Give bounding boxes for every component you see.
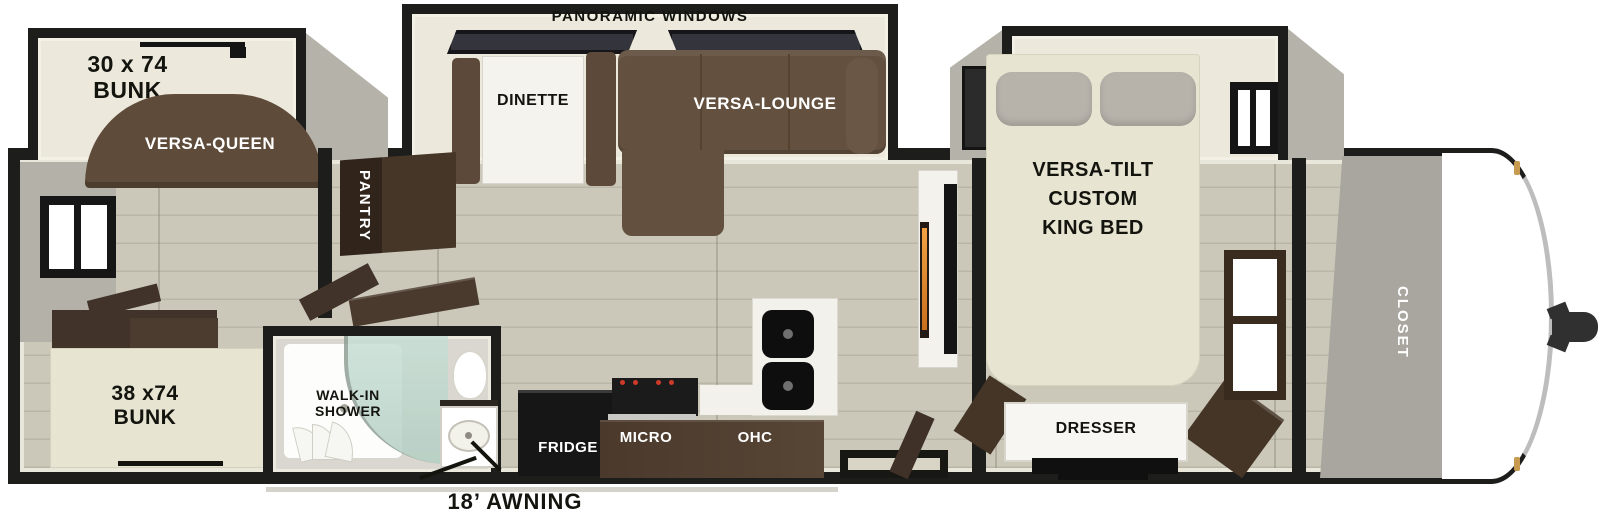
cap-hinge-bottom	[1514, 457, 1520, 471]
bunk-38x74-line1: 38 x74	[65, 382, 225, 406]
micro-label: MICRO	[600, 430, 692, 447]
ohc-label: OHC	[700, 430, 810, 447]
king-line3: KING BED	[1000, 214, 1186, 243]
burner	[669, 380, 674, 385]
sink-drain	[783, 329, 793, 339]
walk-in-shower-label: WALK-IN SHOWER	[288, 388, 408, 419]
versa-lounge-chaise	[622, 150, 724, 236]
bunk-slide-side-wall	[302, 30, 388, 160]
king-line2: CUSTOM	[1000, 185, 1186, 214]
king-slide-right-wall	[1287, 28, 1344, 160]
awning-label: 18’ AWNING	[415, 490, 615, 515]
bunk-step-line	[118, 461, 223, 466]
bunk-30x74-line1: 30 x 74	[55, 52, 200, 78]
burner	[620, 380, 625, 385]
burner	[656, 380, 661, 385]
pillow-right	[1100, 72, 1196, 126]
cap-hinge-top	[1514, 161, 1520, 175]
versa-queen-label: VERSA-QUEEN	[115, 134, 305, 153]
king-line1: VERSA-TILT	[1000, 156, 1186, 185]
pillow-left	[996, 72, 1092, 126]
bunk-38x74-label: 38 x74 BUNK	[65, 382, 225, 429]
pantry-label: PANTRY	[350, 164, 372, 248]
dinette-label: DINETTE	[482, 92, 584, 110]
rear-window-mullion	[74, 200, 81, 274]
dinette-bench-right	[586, 52, 616, 186]
dinette-table	[482, 56, 584, 184]
panoramic-window-left	[447, 30, 637, 54]
king-bed-label: VERSA-TILT CUSTOM KING BED	[1000, 156, 1186, 243]
closet-wall	[1292, 158, 1306, 484]
sink-drain	[783, 381, 793, 391]
bunk-38-headboard-step	[130, 318, 218, 350]
versa-lounge-label: VERSA-LOUNGE	[655, 94, 875, 113]
bedroom-slide-window-mullion	[1250, 86, 1256, 150]
bedroom-side-window-mullion	[1230, 316, 1280, 324]
bunk-38x74-line2: BUNK	[65, 406, 225, 430]
dresser-label: DRESSER	[1004, 420, 1188, 438]
bunk-ladder-hook	[230, 47, 246, 58]
bedroom-side-window	[1224, 250, 1286, 400]
panoramic-windows-label: PANORAMIC WINDOWS	[412, 9, 888, 26]
fireplace-glow	[922, 228, 927, 330]
rv-floorplan: PANORAMIC WINDOWS DINETTE VERSA-LOUNGE 3…	[0, 0, 1600, 516]
bath-sink-drain	[465, 432, 472, 439]
closet-label: CLOSET	[1386, 282, 1410, 362]
shower-line1: WALK-IN	[288, 388, 408, 404]
tv	[944, 184, 957, 354]
toilet	[452, 350, 488, 400]
shower-line2: SHOWER	[288, 404, 408, 420]
dinette-bench-left	[452, 58, 480, 184]
front-cap	[1442, 148, 1554, 484]
kitchen-counter-wing	[700, 385, 756, 415]
dresser-tv-base	[1058, 472, 1148, 480]
cooktop	[612, 378, 698, 416]
burner	[633, 380, 638, 385]
